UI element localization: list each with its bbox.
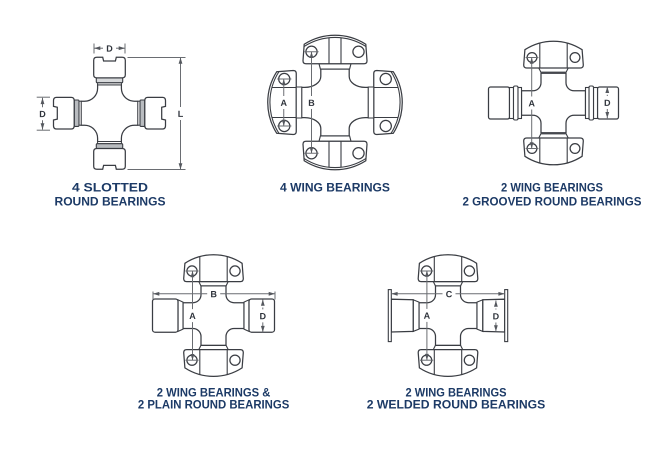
- svg-text:4 SLOTTED: 4 SLOTTED: [72, 181, 148, 195]
- svg-text:4 WING BEARINGS: 4 WING BEARINGS: [280, 181, 390, 195]
- svg-text:2 GROOVED ROUND BEARINGS: 2 GROOVED ROUND BEARINGS: [463, 195, 642, 209]
- svg-text:2 WELDED ROUND BEARINGS: 2 WELDED ROUND BEARINGS: [367, 397, 546, 411]
- svg-text:2 PLAIN ROUND BEARINGS: 2 PLAIN ROUND BEARINGS: [138, 397, 289, 411]
- svg-text:2 WING BEARINGS: 2 WING BEARINGS: [501, 181, 603, 195]
- svg-text:ROUND BEARINGS: ROUND BEARINGS: [55, 195, 166, 209]
